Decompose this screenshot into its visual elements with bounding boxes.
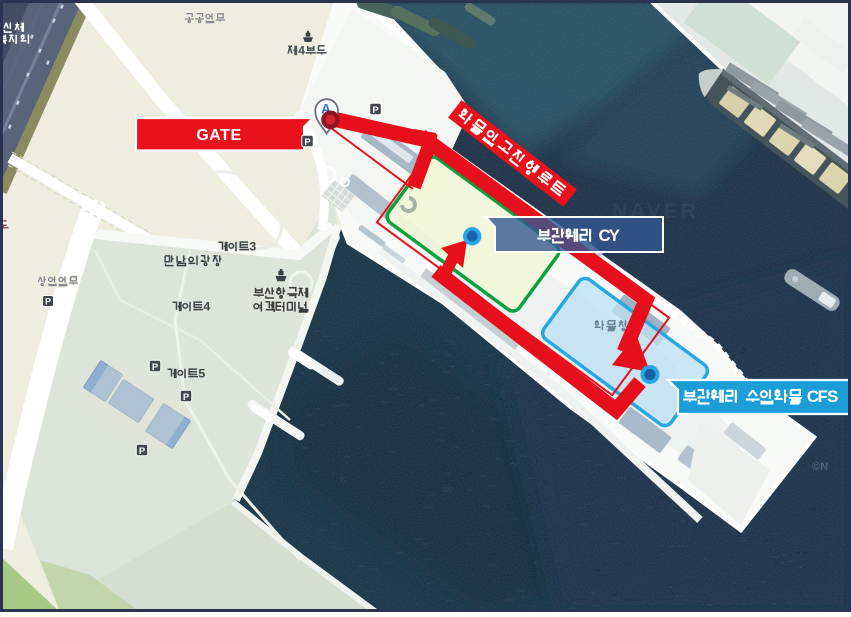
svg-text:P: P [45, 297, 51, 307]
svg-text:4: 4 [298, 44, 305, 58]
svg-text:P: P [183, 391, 189, 402]
svg-text:P: P [152, 361, 158, 372]
svg-text:P: P [372, 104, 378, 115]
svg-text:3: 3 [249, 240, 256, 254]
svg-text:P: P [304, 136, 310, 147]
svg-text:5: 5 [198, 367, 205, 381]
svg-text:4: 4 [203, 300, 210, 314]
svg-text:GATE: GATE [196, 127, 241, 144]
svg-text:Y: Y [609, 226, 620, 245]
svg-text:©N: ©N [812, 461, 828, 473]
svg-text:P: P [139, 445, 145, 456]
svg-text:S: S [827, 387, 838, 406]
